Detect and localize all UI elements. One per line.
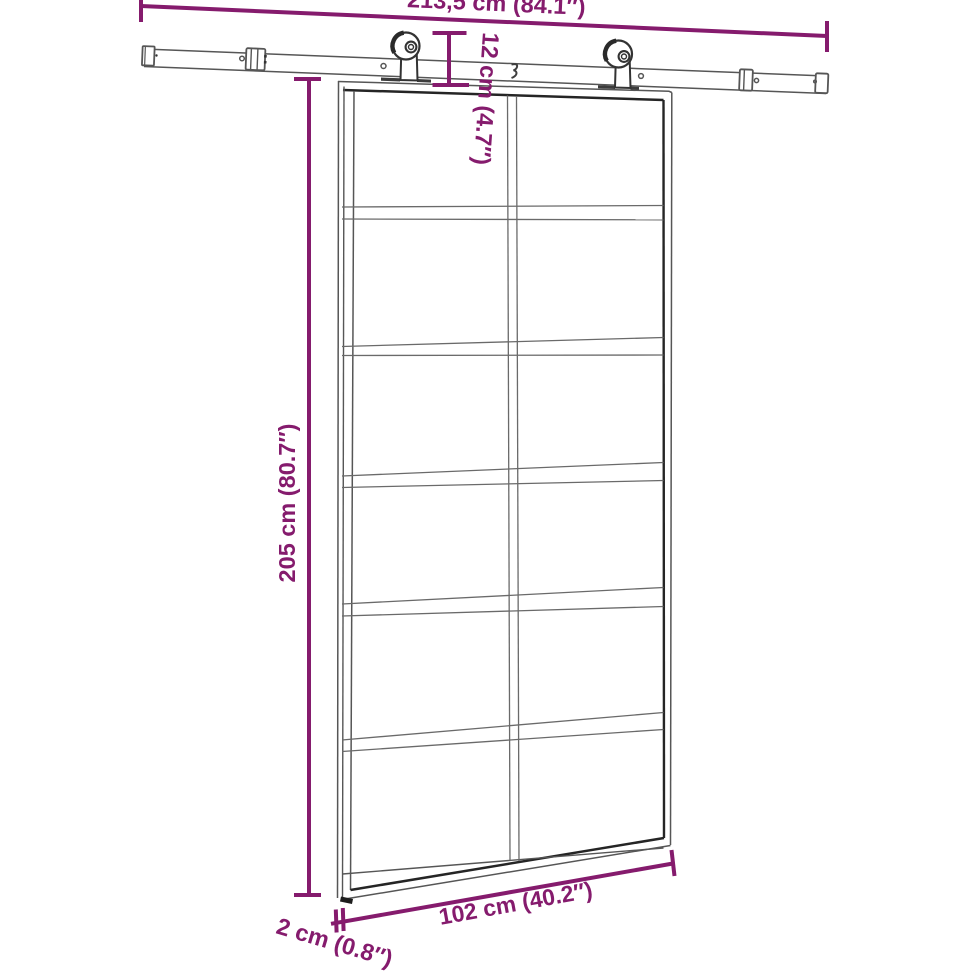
svg-text:205 cm (80.7″): 205 cm (80.7″) bbox=[274, 424, 300, 583]
